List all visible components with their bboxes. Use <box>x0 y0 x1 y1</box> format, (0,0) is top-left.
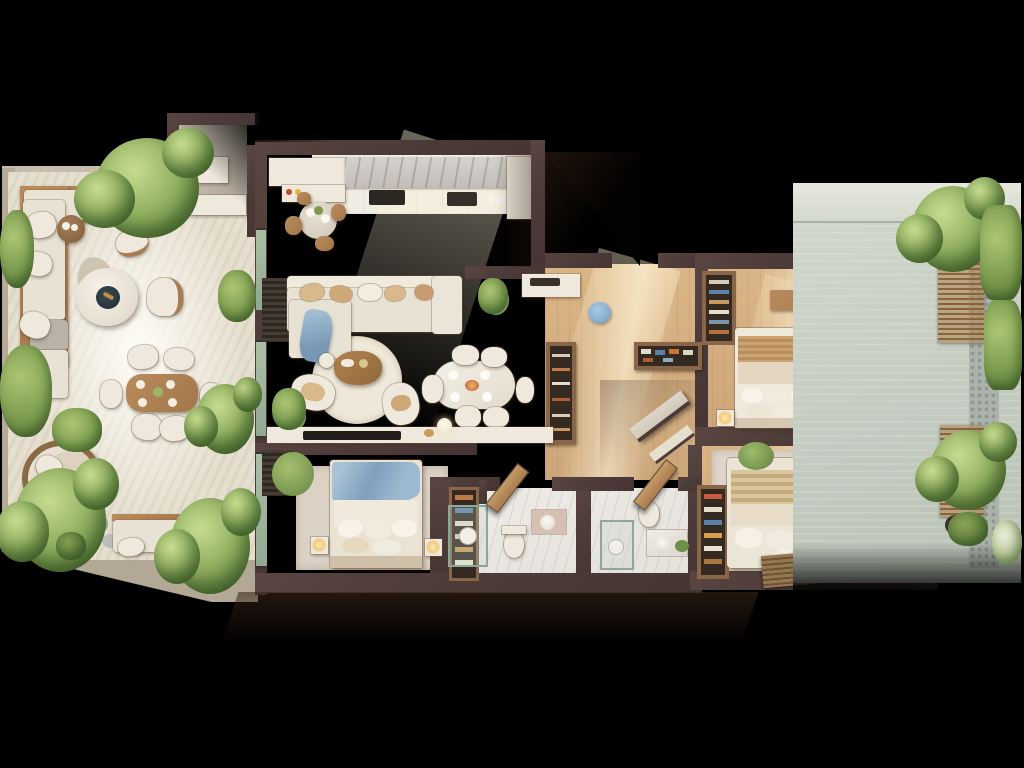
bush-terrace-mid-left <box>0 345 52 437</box>
vine-courtyard-1 <box>980 205 1022 300</box>
table-book <box>341 359 354 367</box>
courtyard-fade <box>793 543 1021 593</box>
tree-terrace-wall <box>196 384 254 454</box>
dining-chair <box>422 375 443 403</box>
kitchen-chair <box>331 204 346 221</box>
wall-bath-divider <box>576 491 591 581</box>
bush-terrace-left-edge <box>0 210 34 288</box>
cooktop <box>369 190 405 205</box>
outdoor-armchair <box>147 278 183 316</box>
clothes <box>704 520 722 525</box>
bed2-cushion <box>735 528 763 548</box>
bathroom-1 <box>444 488 576 576</box>
bed1-pillow <box>745 404 771 417</box>
clothes <box>709 300 729 304</box>
side-table-small <box>319 353 334 368</box>
shelf-item <box>552 398 570 401</box>
dining-chair <box>481 347 507 367</box>
dining-chair <box>516 377 534 403</box>
plate <box>168 398 177 407</box>
toilet-tank <box>502 526 526 534</box>
shelf-item <box>552 382 570 385</box>
clothes <box>709 280 729 284</box>
entry-wall-top <box>167 113 259 125</box>
plate <box>62 222 70 230</box>
wardrobe-bed1 <box>702 271 736 345</box>
dining-chair <box>455 406 481 428</box>
bed3-blue-blanket <box>332 462 420 502</box>
plate <box>448 370 458 380</box>
kitchen-chair <box>315 236 334 251</box>
basin <box>655 536 671 552</box>
floor-plan-render <box>0 0 1024 768</box>
bed3-pillow <box>372 540 401 555</box>
kitchen-shadow-right <box>495 155 531 267</box>
clothes <box>709 290 729 294</box>
shoe-pair <box>663 358 673 362</box>
toilet <box>504 532 524 558</box>
clothes <box>709 310 729 314</box>
clothes <box>704 507 722 512</box>
shelf-item <box>552 428 570 431</box>
lamp <box>312 538 326 552</box>
bed3-pillow <box>392 520 417 537</box>
lamp <box>426 540 440 554</box>
jar <box>286 189 292 195</box>
vanity-plant <box>675 540 689 552</box>
bush-terrace-right <box>218 270 256 322</box>
candle <box>437 418 452 434</box>
dining-chair <box>483 407 509 428</box>
bush-balcony-living <box>272 388 306 430</box>
blue-pouf <box>588 302 611 323</box>
bed2-cushion <box>765 530 795 550</box>
bed1-pillow <box>765 390 789 405</box>
kitchen-sink <box>486 196 494 204</box>
clothes <box>709 320 729 324</box>
dining-chair <box>452 345 479 365</box>
bed3-pillow <box>363 521 391 540</box>
plant-hall-top <box>478 278 508 314</box>
oven-appliance <box>447 192 477 206</box>
bush-round-dark <box>56 532 86 560</box>
bush-courtyard-white <box>992 520 1022 564</box>
clothes <box>709 330 729 334</box>
wardrobe-bed2 <box>697 485 729 579</box>
clothes <box>704 546 722 551</box>
sofa-pillow-white <box>358 284 382 301</box>
clothes <box>704 494 722 499</box>
shoe-pair <box>641 349 651 354</box>
clothes <box>704 533 722 538</box>
shower-drain <box>609 540 623 554</box>
lamp <box>718 411 732 425</box>
bed3-pillow <box>337 518 364 538</box>
sofa-end-seat <box>432 276 462 334</box>
shadow-building-bottom <box>222 592 759 644</box>
kitchen-chair <box>297 192 311 205</box>
plant-shelf-bed2 <box>738 442 774 470</box>
shoe-pair <box>655 350 665 355</box>
bush-courtyard-pot <box>948 512 988 546</box>
console-decor-bowl <box>424 429 434 437</box>
plate <box>482 392 492 402</box>
plant-bed3 <box>272 452 314 496</box>
shower-drain <box>460 528 476 544</box>
plate <box>71 224 78 231</box>
kitchen-counter-left <box>269 158 347 186</box>
coffee-table <box>334 351 382 385</box>
bed3-pillow <box>342 538 369 553</box>
clothes <box>704 559 722 564</box>
bush-small <box>52 408 102 452</box>
tv-screen <box>303 431 401 440</box>
centerpiece <box>153 387 163 397</box>
tree-terrace-bottom-mid <box>170 498 250 594</box>
plate <box>138 398 147 407</box>
vine-courtyard-2 <box>984 300 1022 390</box>
console-tray <box>530 278 560 286</box>
centerpiece-food <box>465 380 479 391</box>
tree-terrace-top <box>95 138 199 238</box>
kitchen-chair <box>285 216 302 235</box>
shadow-kitchen-corner-soft <box>545 152 640 266</box>
shoe-shelf <box>634 342 702 370</box>
kitchen-counter-marble <box>345 157 511 188</box>
tree-courtyard-bottom <box>930 430 1006 510</box>
bed3-headboard <box>330 556 422 568</box>
outdoor-chair <box>100 380 122 408</box>
plate <box>321 214 330 223</box>
plate <box>166 380 175 389</box>
basin <box>540 515 555 530</box>
plate <box>480 370 490 380</box>
kitchen <box>255 140 545 270</box>
plate <box>450 392 460 402</box>
table-decor <box>359 359 368 368</box>
shoe-pair <box>669 349 679 354</box>
shoe-pair <box>683 350 693 355</box>
hall-shadow <box>600 380 700 480</box>
bed-3 <box>330 460 422 568</box>
shoe-pair <box>643 358 653 362</box>
vase-greens <box>314 206 323 215</box>
shadow-entry-diagonal <box>255 112 385 142</box>
shelf-item <box>552 414 570 417</box>
bed1-pillow <box>741 388 763 403</box>
plate <box>136 380 145 389</box>
